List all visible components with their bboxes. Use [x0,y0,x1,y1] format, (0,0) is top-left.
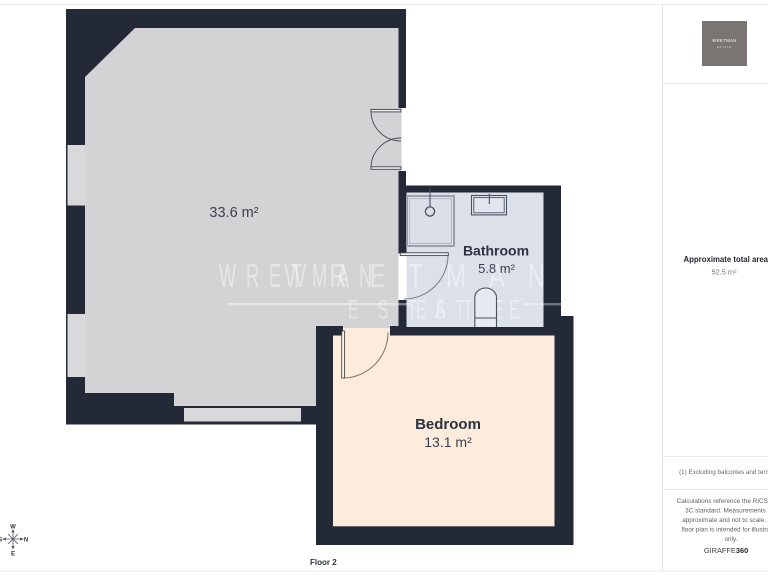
svg-text:Approximate total area⁽¹⁾: Approximate total area⁽¹⁾ [684,255,768,264]
svg-text:S: S [0,538,2,544]
svg-text:WRETMAN: WRETMAN [712,38,736,43]
svg-text:5.8 m²: 5.8 m² [478,261,516,276]
svg-text:approximate and not to scale.: approximate and not to scale. This [682,517,768,524]
svg-text:13.1 m²: 13.1 m² [424,434,472,450]
svg-text:W: W [10,524,16,530]
svg-text:3C standard. Measurements are: 3C standard. Measurements are [685,508,768,515]
svg-text:GIRAFFE360: GIRAFFE360 [704,546,748,555]
svg-text:floor plan is intended for ill: floor plan is intended for illustration [682,527,768,534]
svg-text:Bathroom: Bathroom [463,243,529,259]
svg-text:N: N [24,538,28,544]
svg-text:33.6 m²: 33.6 m² [209,205,258,221]
svg-text:Calculations reference the RIC: Calculations reference the RICS IPMS [677,498,768,505]
svg-text:ESTATE: ESTATE [717,45,732,49]
svg-text:E: E [11,552,15,558]
svg-text:(1) Excluding balconies and te: (1) Excluding balconies and terraces [679,469,768,476]
svg-text:only.: only. [724,536,737,543]
svg-text:WRETMAN: WRETMAN [284,258,568,295]
svg-text:Floor 2: Floor 2 [310,558,337,567]
svg-text:ESTATE: ESTATE [416,294,528,324]
svg-text:Bedroom: Bedroom [415,416,481,433]
svg-text:52.5 m²: 52.5 m² [711,268,737,277]
